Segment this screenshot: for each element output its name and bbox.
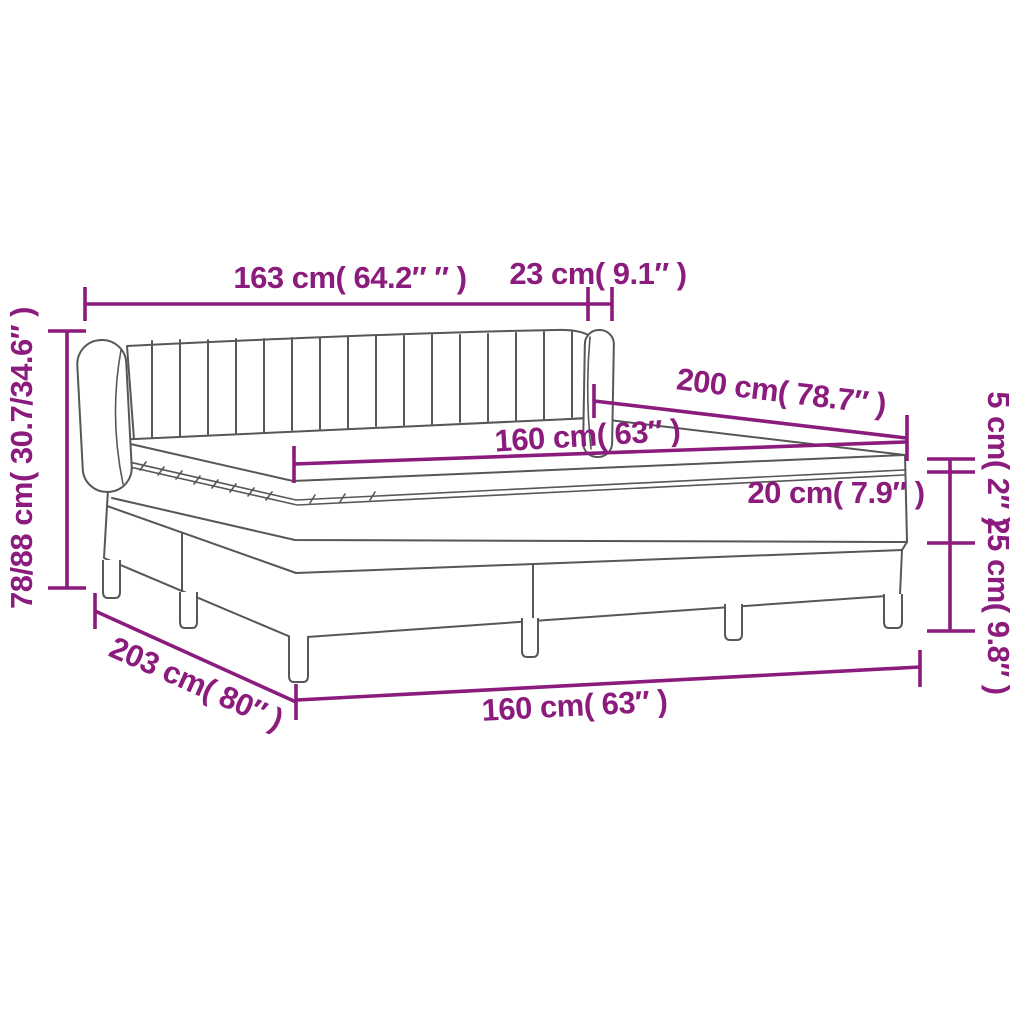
dim-label-base-height: 25 cm( 9.8″ ) (981, 517, 1016, 694)
dim-label-overall-height: 78/88 cm( 30.7/34.6″ ) (4, 307, 39, 609)
dim-line-height-stack (927, 459, 975, 631)
dim-label-overall-width-top: 163 cm( 64.2″ ″ ) (233, 260, 466, 295)
dim-label-overall-length: 203 cm( 80″ ) (104, 630, 288, 738)
headboard-left-roll (76, 339, 133, 493)
bed-dimension-diagram: 163 cm( 64.2″ ″ ) 23 cm( 9.1″ ) 78/88 cm… (0, 0, 1024, 1024)
dim-label-topper-height: 5 cm( 2″ ) (981, 391, 1016, 527)
bed-leg (180, 592, 197, 628)
dim-label-headboard-depth: 23 cm( 9.1″ ) (509, 256, 686, 291)
bed-leg (522, 618, 538, 657)
bed-leg (884, 594, 902, 628)
bed-leg (289, 636, 308, 682)
dim-label-mattress-height: 20 cm( 7.9″ ) (747, 475, 924, 510)
bed-leg (725, 604, 742, 640)
bed-leg (103, 560, 120, 598)
